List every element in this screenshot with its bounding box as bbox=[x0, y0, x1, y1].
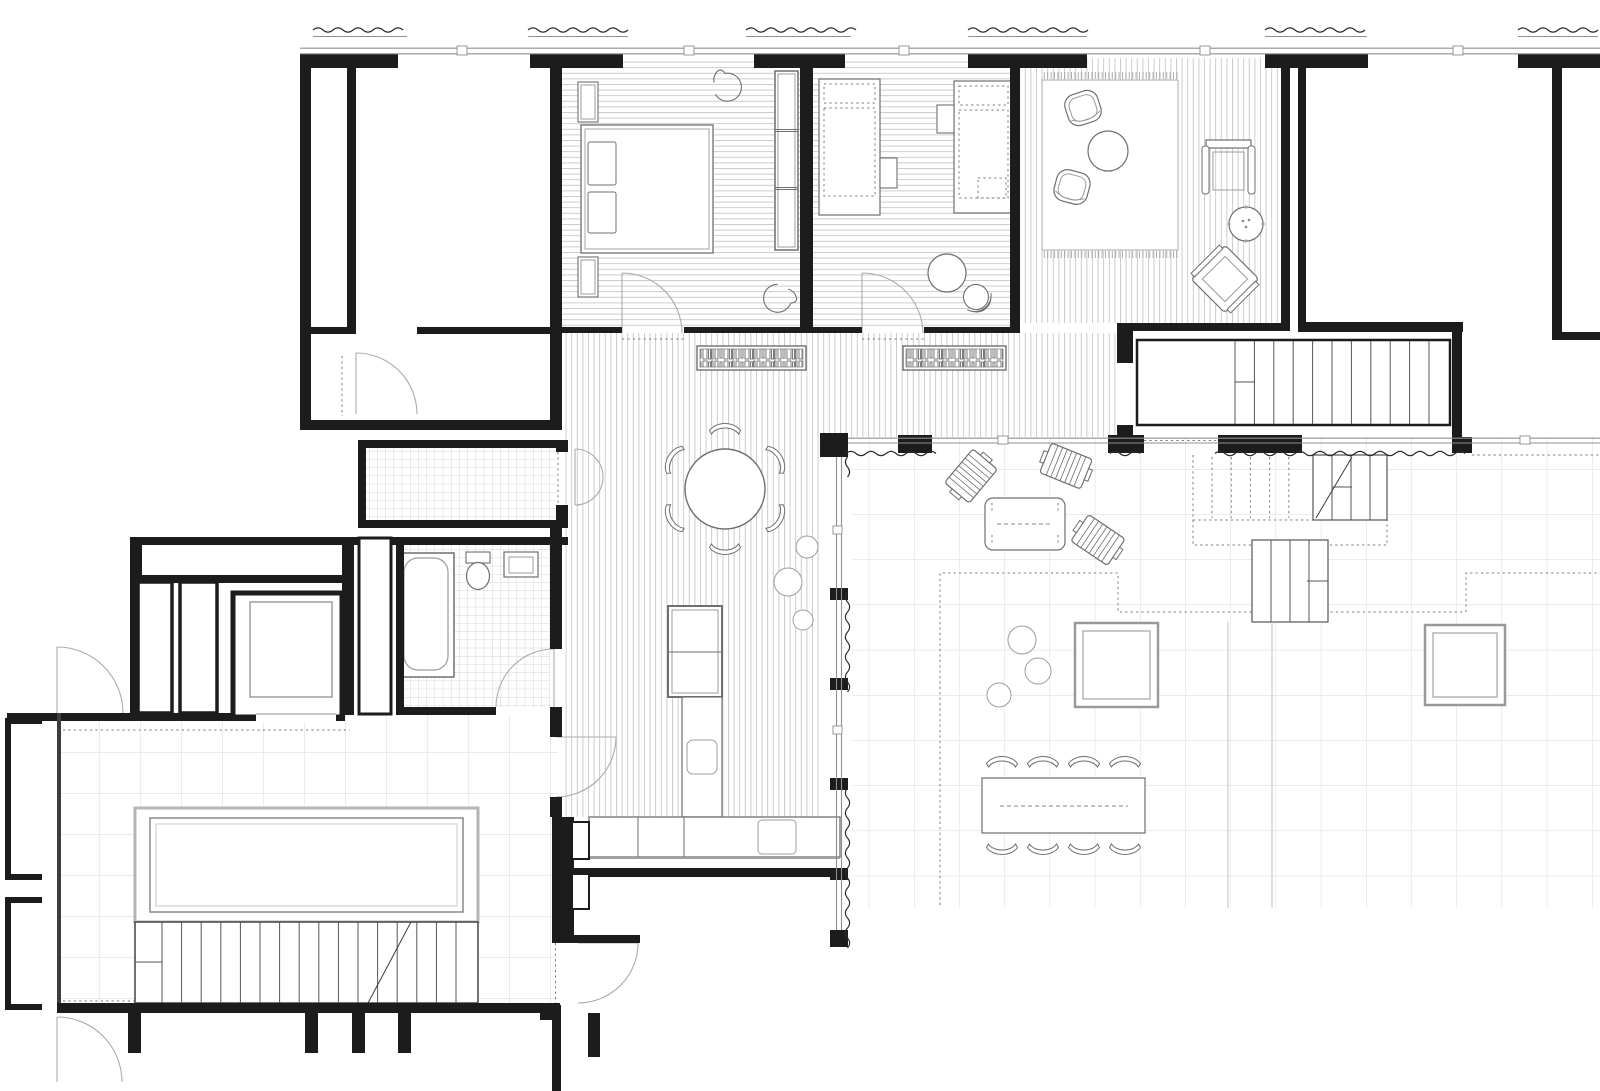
round-coffee-table bbox=[1088, 131, 1128, 171]
floor-plan-drawing bbox=[0, 0, 1600, 1091]
floor-plan-page bbox=[0, 0, 1600, 1091]
outdoor-coffee-table bbox=[985, 498, 1065, 550]
plant-pot bbox=[793, 610, 813, 630]
bookshelf bbox=[697, 346, 806, 370]
shading-wave-line bbox=[845, 457, 849, 477]
terrace-left-staircase bbox=[135, 922, 478, 1003]
door-swing bbox=[578, 943, 638, 1003]
awning-wave-line bbox=[528, 28, 628, 32]
door-swing bbox=[57, 647, 123, 713]
plant-pot bbox=[987, 683, 1011, 707]
door-swing bbox=[57, 1017, 122, 1082]
double-bed bbox=[581, 125, 713, 253]
door-swing bbox=[356, 353, 417, 414]
round-dining-table bbox=[685, 449, 765, 529]
awning-wave-line bbox=[1518, 28, 1598, 32]
duct-closet bbox=[138, 582, 172, 713]
terrace-edge bbox=[57, 713, 61, 1003]
wall-niche bbox=[572, 822, 589, 859]
bathtub bbox=[399, 553, 454, 677]
desk-table bbox=[937, 105, 954, 133]
terrace-right-small-stair bbox=[1252, 540, 1328, 622]
plant-pot bbox=[1025, 658, 1051, 684]
awning-wave-line bbox=[1265, 28, 1365, 32]
planter-bed bbox=[135, 808, 478, 922]
bookshelf bbox=[903, 346, 1006, 370]
outdoor-dining-table bbox=[982, 778, 1145, 833]
pillow bbox=[588, 142, 616, 185]
single-bed bbox=[819, 79, 880, 215]
plant-pot bbox=[1008, 626, 1036, 654]
kitchen-counter bbox=[589, 817, 840, 859]
plant-pot bbox=[774, 568, 802, 596]
awning-wave-line bbox=[968, 28, 1088, 32]
plant-pot bbox=[796, 536, 818, 558]
shading-wave-line bbox=[845, 592, 849, 692]
toilet bbox=[466, 552, 490, 590]
duct-closet bbox=[359, 538, 391, 714]
wardrobe bbox=[775, 71, 798, 250]
wc-floor bbox=[366, 448, 556, 520]
desk-table bbox=[880, 158, 897, 188]
pillow bbox=[588, 192, 616, 233]
washbasin bbox=[504, 552, 538, 577]
round-side-table bbox=[928, 254, 966, 292]
awning-wave-line bbox=[746, 28, 856, 32]
duct-closet bbox=[180, 582, 217, 713]
skylight bbox=[1075, 623, 1158, 707]
single-bed bbox=[954, 81, 1013, 213]
awning-wave-line bbox=[313, 28, 403, 32]
elevator bbox=[233, 593, 342, 722]
wall-niche bbox=[572, 874, 589, 909]
skylight bbox=[1425, 625, 1505, 705]
